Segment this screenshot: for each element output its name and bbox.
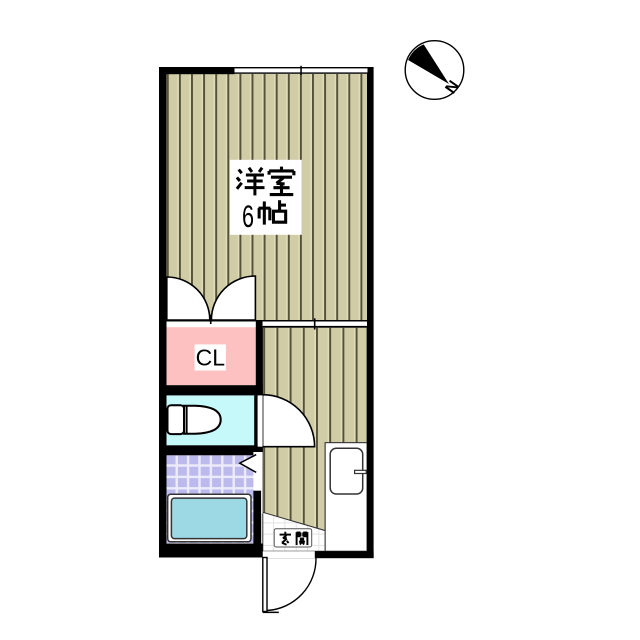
svg-text:6: 6 [242, 198, 254, 234]
svg-text:CL: CL [196, 345, 226, 371]
